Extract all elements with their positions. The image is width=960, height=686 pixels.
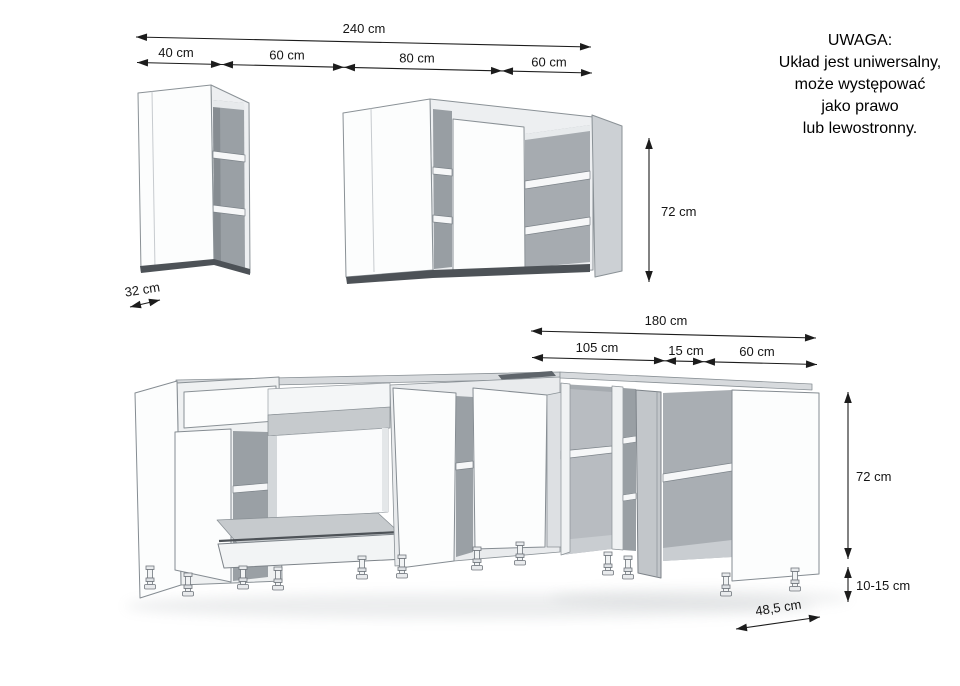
- wall-cabinet-open-door: [592, 115, 622, 277]
- wall-cabinet-open-section: [433, 109, 452, 269]
- wall-height-label: 72 cm: [661, 204, 696, 219]
- cabinet-foot: [357, 556, 368, 579]
- base-cabinet-shelf: [456, 461, 473, 470]
- wall-total-width-dimension: 240 cm: [136, 21, 591, 47]
- legs-height-label: 10-15 cm: [856, 578, 910, 593]
- note-title: UWAGA:: [748, 30, 960, 52]
- cabinet-foot: [721, 573, 732, 596]
- door-cabinet-opening: [456, 396, 473, 557]
- legs-height-dimension: 10-15 cm: [848, 567, 910, 602]
- base-cabinet-door: [473, 388, 547, 549]
- oven-housing-opening: [268, 428, 388, 521]
- diagram-page: 240 cm 40 cm 60 cm 80 cm 60 cm 32 cm: [0, 0, 960, 686]
- wall-segment-dimensions: 40 cm 60 cm 80 cm 60 cm: [137, 45, 592, 73]
- wall-cabinet-open-section: [525, 125, 590, 268]
- small-wall-cabinet-drawing: [138, 85, 250, 275]
- base-seg2-label: 15 cm: [668, 343, 703, 358]
- note-line: Układ jest uniwersalny,: [748, 52, 960, 74]
- note-line: jako prawo: [748, 96, 960, 118]
- base-cabinet-door: [393, 388, 456, 568]
- cabinet-foot: [790, 568, 801, 591]
- cabinet-foot: [623, 556, 634, 579]
- floor-shadow: [125, 588, 850, 619]
- wall-seg2-label: 60 cm: [269, 48, 304, 63]
- base-total-label: 180 cm: [645, 313, 688, 328]
- wall-cabinet-shelf: [433, 215, 452, 224]
- note-line: lub lewostronny.: [748, 118, 960, 140]
- wall-total-label: 240 cm: [343, 21, 386, 36]
- base-segment-dimensions: 105 cm 15 cm 60 cm: [532, 340, 817, 365]
- base-height-dimension: 72 cm: [848, 392, 891, 559]
- wall-cabinet-door: [453, 119, 525, 274]
- drawer-cabinet-side-panel: [135, 381, 181, 598]
- wall-cabinet-double-door: [343, 99, 433, 277]
- wall-seg3-label: 80 cm: [399, 51, 434, 66]
- wall-height-dimension: 72 cm: [649, 138, 696, 282]
- wall-seg4-label: 60 cm: [531, 55, 566, 70]
- base-height-label: 72 cm: [856, 469, 891, 484]
- wall-depth-label: 32 cm: [124, 279, 161, 299]
- wall-seg1-label: 40 cm: [158, 45, 193, 60]
- main-wall-cabinet-drawing: [343, 99, 622, 284]
- small-wall-cabinet-door: [138, 85, 214, 271]
- small-wall-cabinet-depth-dimension: 32 cm: [124, 279, 161, 307]
- universal-layout-note: UWAGA: Układ jest uniwersalny, może wyst…: [748, 30, 960, 140]
- drawer-front: [184, 386, 276, 428]
- base-seg3-label: 60 cm: [739, 344, 774, 359]
- base-cabinet-run-drawing: [135, 371, 819, 598]
- narrow-cabinet-opening: [623, 388, 636, 551]
- end-side-panel: [732, 390, 819, 581]
- base-seg1-label: 105 cm: [576, 340, 619, 355]
- base-total-width-dimension: 180 cm: [531, 313, 816, 338]
- cabinet-foot: [603, 552, 614, 575]
- wall-cabinet-shelf: [433, 167, 452, 176]
- note-line: może występować: [748, 74, 960, 96]
